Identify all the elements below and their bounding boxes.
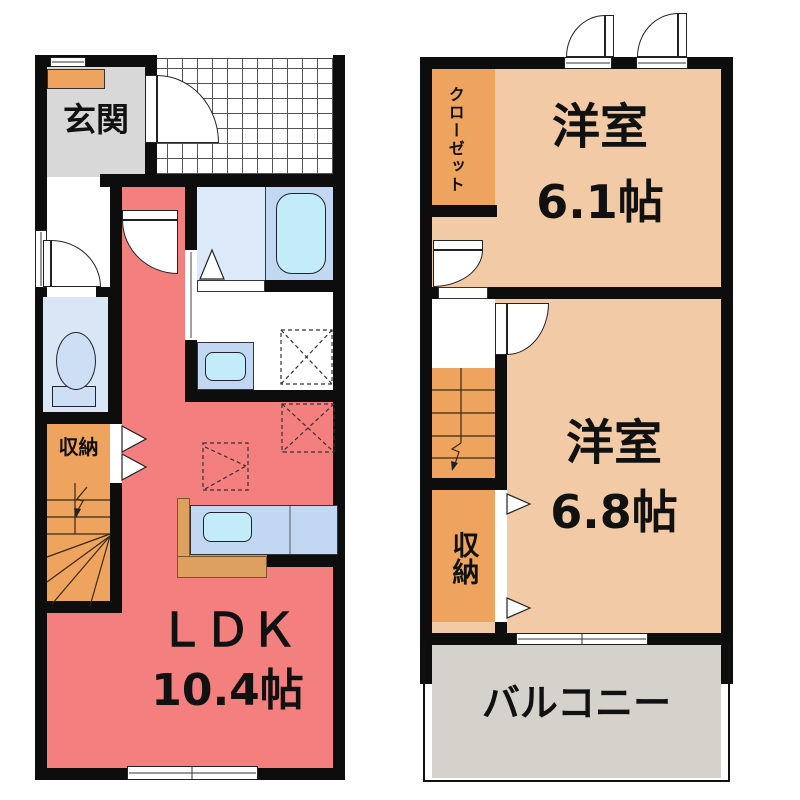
- floorplan: 玄関 収納 ＬＤＫ 10.4帖 クローゼット 洋室 6.1帖 洋室 6.8帖 収…: [0, 0, 800, 800]
- bedroom-b-size: 6.8帖: [507, 488, 721, 536]
- bedroom-a-label: 洋室: [480, 102, 720, 152]
- storage-1f-label: 収納: [47, 437, 110, 458]
- balcony-label: バルコニー: [432, 684, 721, 724]
- ldk-label: ＬＤＫ: [122, 606, 333, 654]
- bedroom-b-label: 洋室: [507, 418, 721, 468]
- storage-2f-label: 収納: [448, 508, 476, 608]
- ldk-size-label: 10.4帖: [122, 668, 333, 714]
- bedroom-a-size: 6.1帖: [480, 178, 720, 226]
- genkan-label: 玄関: [47, 103, 145, 138]
- closet-label: クローゼット: [446, 80, 463, 200]
